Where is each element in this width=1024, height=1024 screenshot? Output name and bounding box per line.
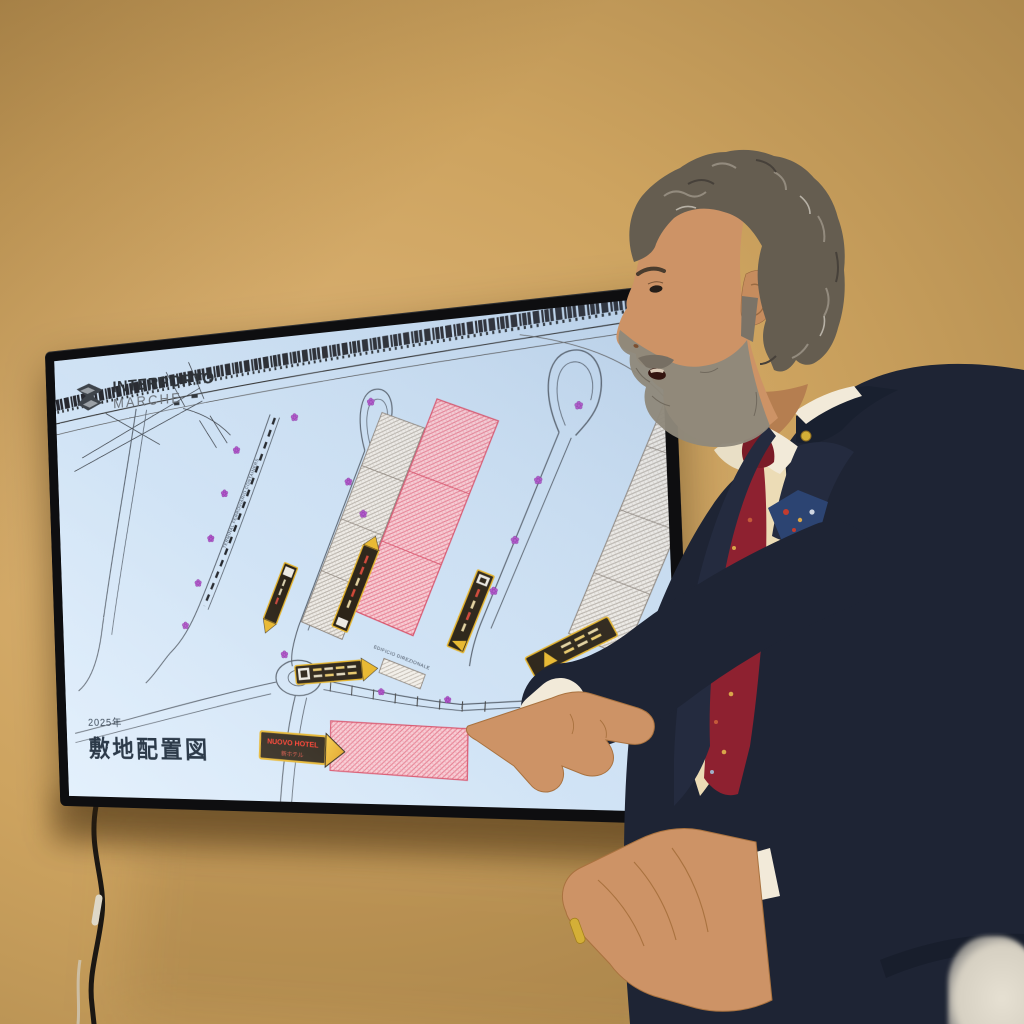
sideburn — [741, 296, 758, 342]
photo-scene: TERMINAL FERROVIARIO CONTAINERS — [0, 0, 1024, 1024]
corner-object — [948, 936, 1024, 1024]
lower-hand — [562, 828, 780, 1011]
presenter — [0, 0, 1024, 1024]
pointing-hand — [466, 692, 654, 792]
lapel-pin — [801, 431, 811, 441]
